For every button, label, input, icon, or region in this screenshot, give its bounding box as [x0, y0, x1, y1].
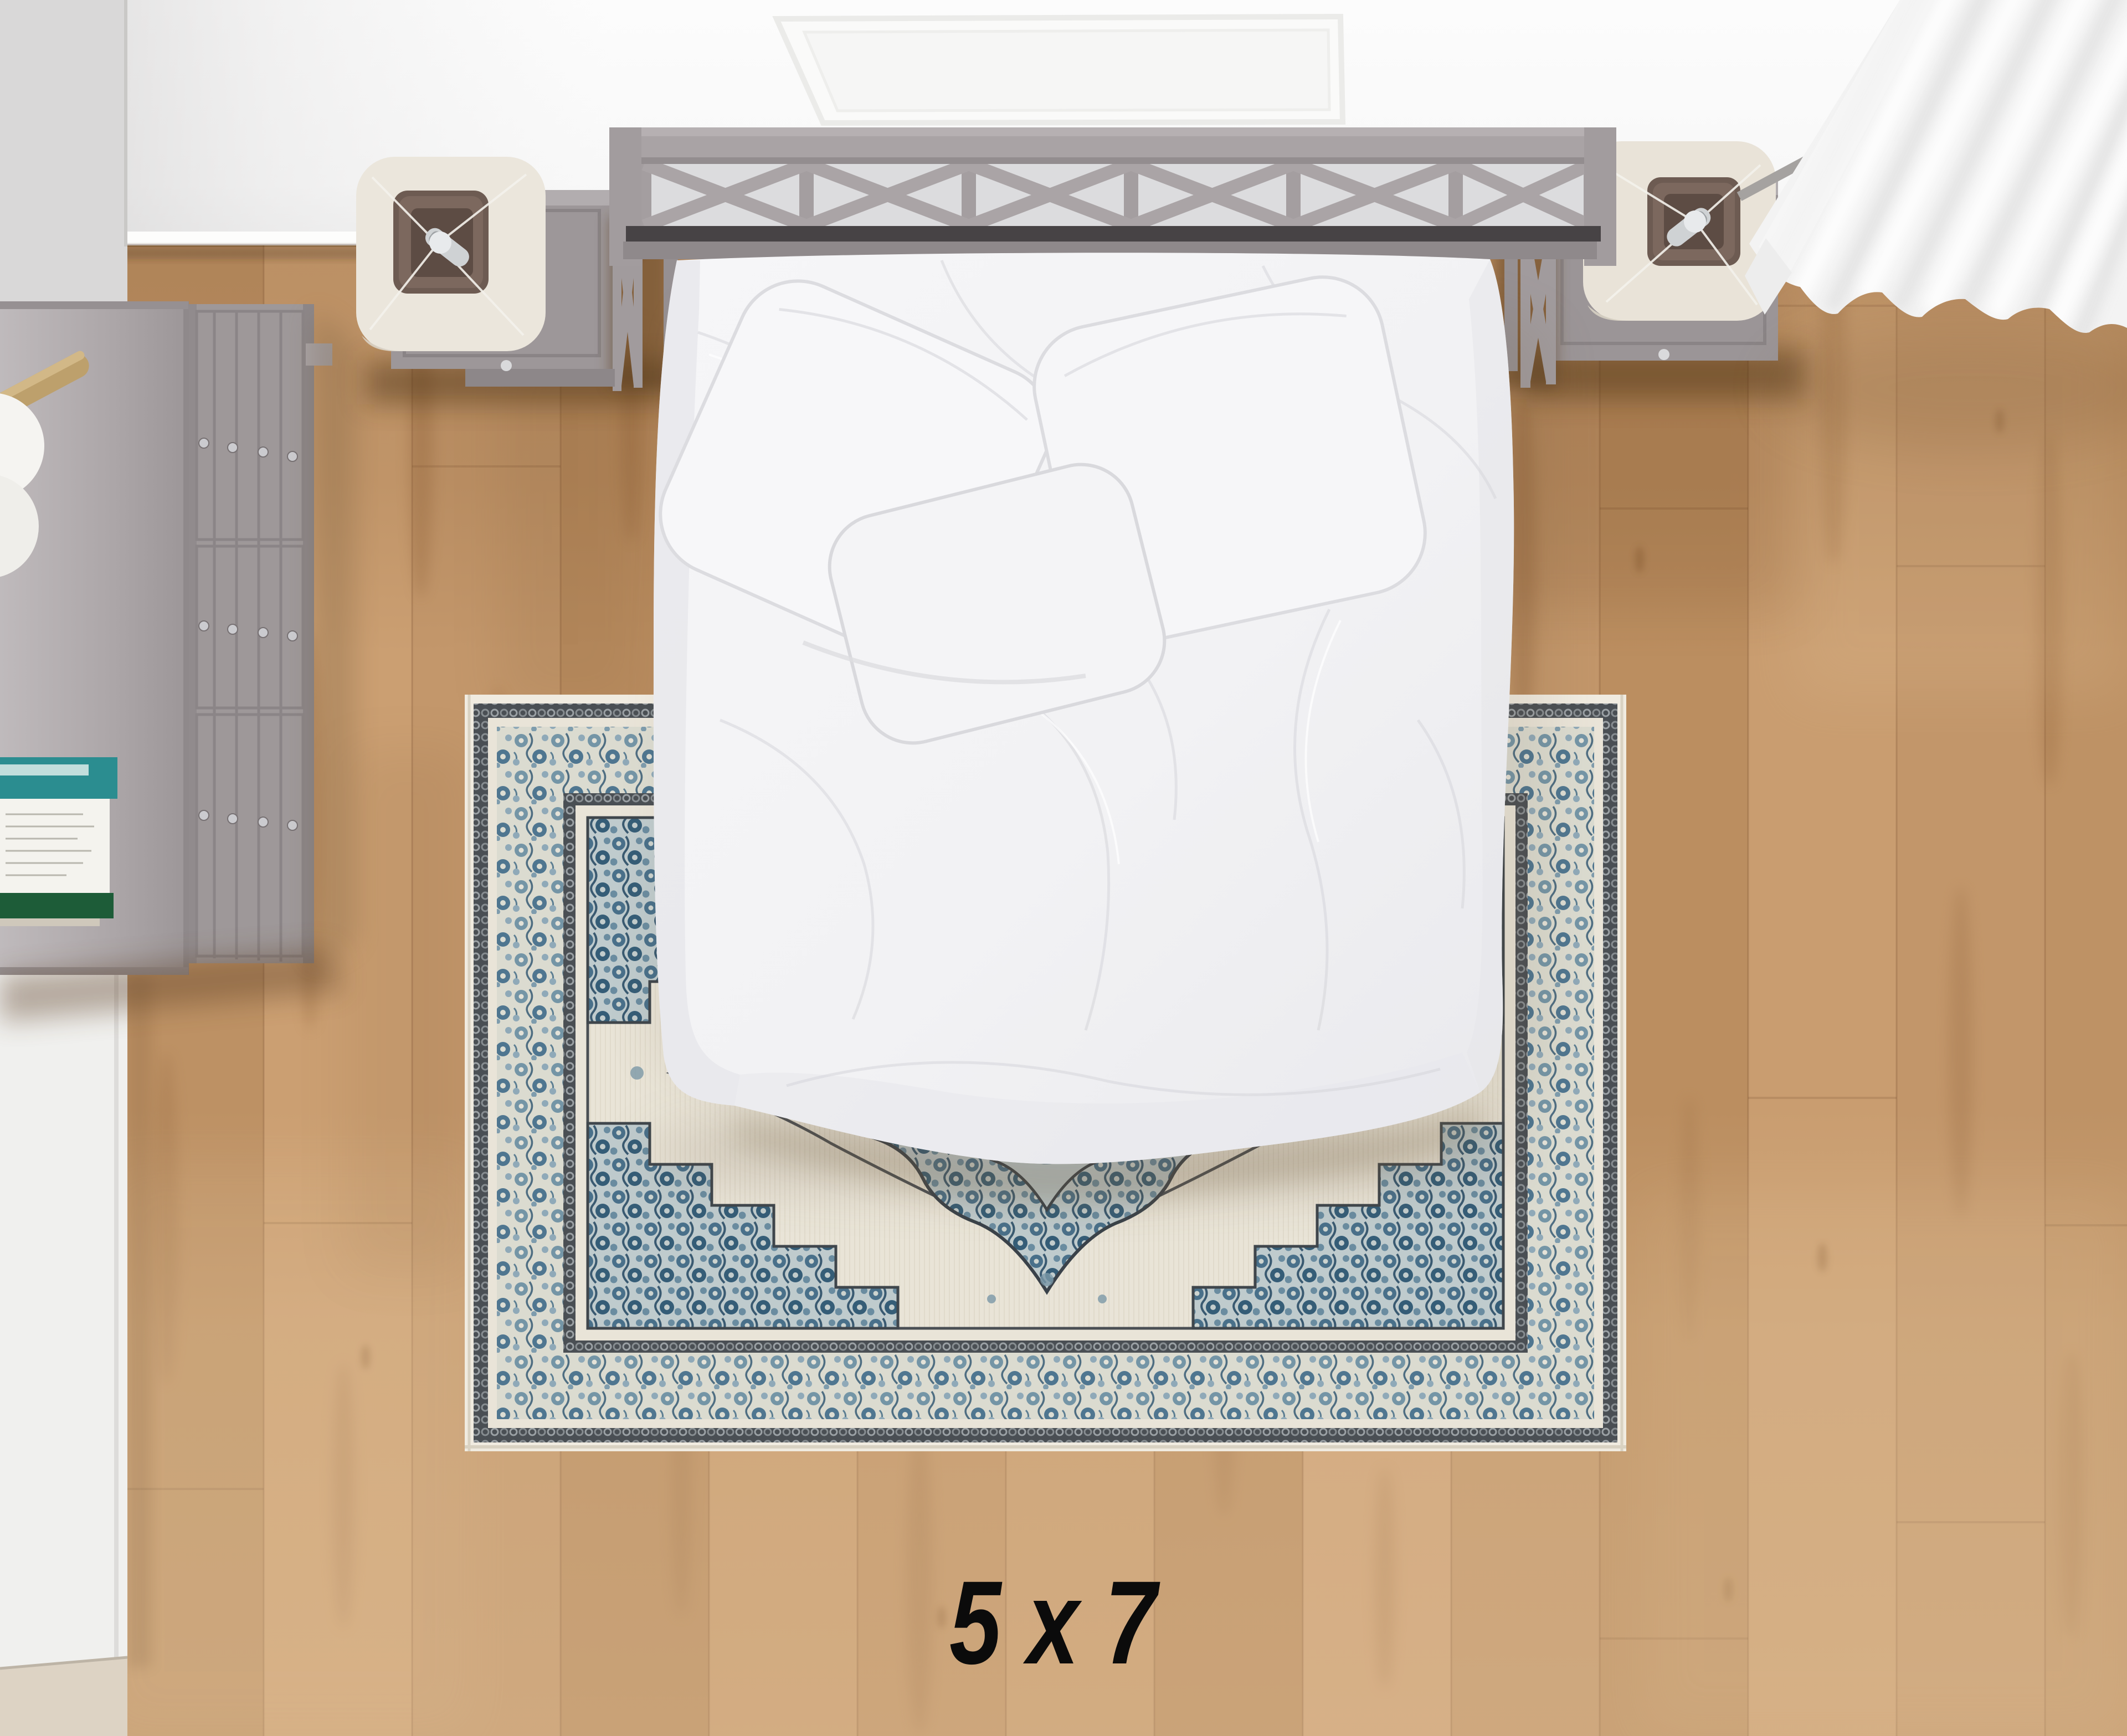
- svg-text:5 x 7: 5 x 7: [949, 1557, 1160, 1689]
